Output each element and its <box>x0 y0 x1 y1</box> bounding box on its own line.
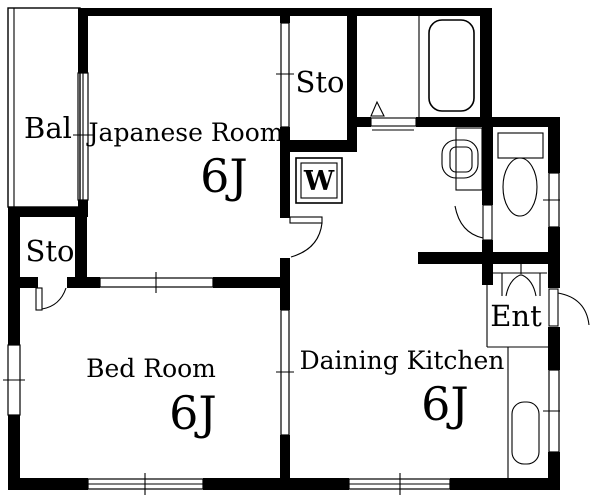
wall-toilet-left-a <box>482 127 493 205</box>
toilet-door-leaf <box>483 205 492 240</box>
storage-left-door-arc <box>42 288 66 309</box>
wall-toilet-bottom <box>493 252 553 264</box>
bathroom-door-swing-mark <box>371 102 384 116</box>
balcony-label: Bal <box>24 111 72 145</box>
wall-jroom-bottom-c <box>213 277 290 288</box>
wall-storage-left-right <box>75 207 87 288</box>
bed-room-size: 6J <box>169 386 217 440</box>
entrance-door-arc <box>558 293 589 325</box>
wall-bottom-b <box>203 478 349 490</box>
wall-storage-top-bottom <box>280 140 357 152</box>
washbasin-bowl-inner <box>450 147 472 172</box>
wall-jroom-bottom-b <box>67 277 100 288</box>
washing-machine-label: W <box>303 166 335 197</box>
wall-center-top <box>280 8 290 23</box>
wall-right-c <box>548 327 560 370</box>
dining-kitchen-label: Daining Kitchen <box>300 346 505 375</box>
kitchen-sink <box>512 402 539 464</box>
wall-right-b <box>548 227 560 288</box>
wall-bottom-a <box>8 478 88 490</box>
wall-bath-right <box>480 8 492 127</box>
jroom-dk-door-arc <box>291 223 322 257</box>
bed-room-label: Bed Room <box>86 354 216 383</box>
wall-bath-bottom-a <box>347 117 371 127</box>
storage-left-label: Sto <box>26 234 75 268</box>
wall-right-a <box>548 127 560 173</box>
bathroom-door-panel <box>371 118 416 126</box>
japanese-room-size: 6J <box>200 149 248 203</box>
entrance-mark-right-arc <box>522 275 536 296</box>
jroom-storage-sliding-door <box>281 23 289 127</box>
entrance-label: Ent <box>490 299 542 333</box>
toilet-tank <box>498 133 543 158</box>
storage-left-door-leaf <box>36 288 42 310</box>
entrance-door-leaf <box>549 289 558 326</box>
japanese-room-label: Japanese Room <box>86 118 284 147</box>
wall-center-b <box>280 258 290 310</box>
wall-washroom-bottom <box>418 252 482 264</box>
wall-bottom-c <box>450 478 560 490</box>
storage-top-label: Sto <box>296 65 345 99</box>
balcony-outline <box>8 8 80 207</box>
floor-plan-drawing: Bal Japanese Room 6J Sto W Sto Bed Room … <box>0 0 600 498</box>
floor-plan: Bal Japanese Room 6J Sto W Sto Bed Room … <box>0 0 600 498</box>
toilet-bowl <box>503 158 537 216</box>
jroom-dk-door-leaf <box>290 217 322 223</box>
wall-storage-top-right <box>347 16 357 152</box>
wall-left-lower <box>8 415 20 478</box>
wall-left-upper <box>8 207 20 278</box>
bathtub <box>429 20 474 111</box>
entrance-mark-left-arc <box>506 275 520 296</box>
toilet-door-arc <box>455 206 483 238</box>
wall-bath-bottom-b <box>416 117 560 127</box>
dining-kitchen-size: 6J <box>421 377 469 431</box>
wall-left-mid <box>8 288 20 345</box>
wall-jroom-bottom-a <box>8 277 38 288</box>
